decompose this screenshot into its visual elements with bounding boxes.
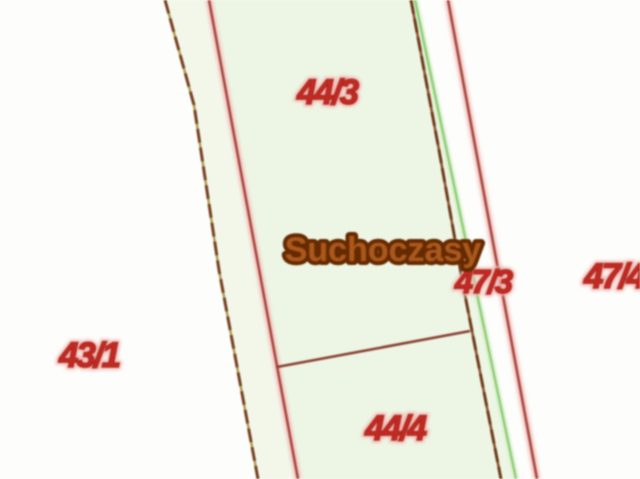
svg-text:Suchoczasy: Suchoczasy <box>285 231 482 269</box>
svg-text:47/4: 47/4 <box>583 257 640 296</box>
svg-text:44/3: 44/3 <box>296 73 360 112</box>
svg-text:44/4: 44/4 <box>364 409 427 448</box>
svg-text:43/1: 43/1 <box>58 336 120 375</box>
